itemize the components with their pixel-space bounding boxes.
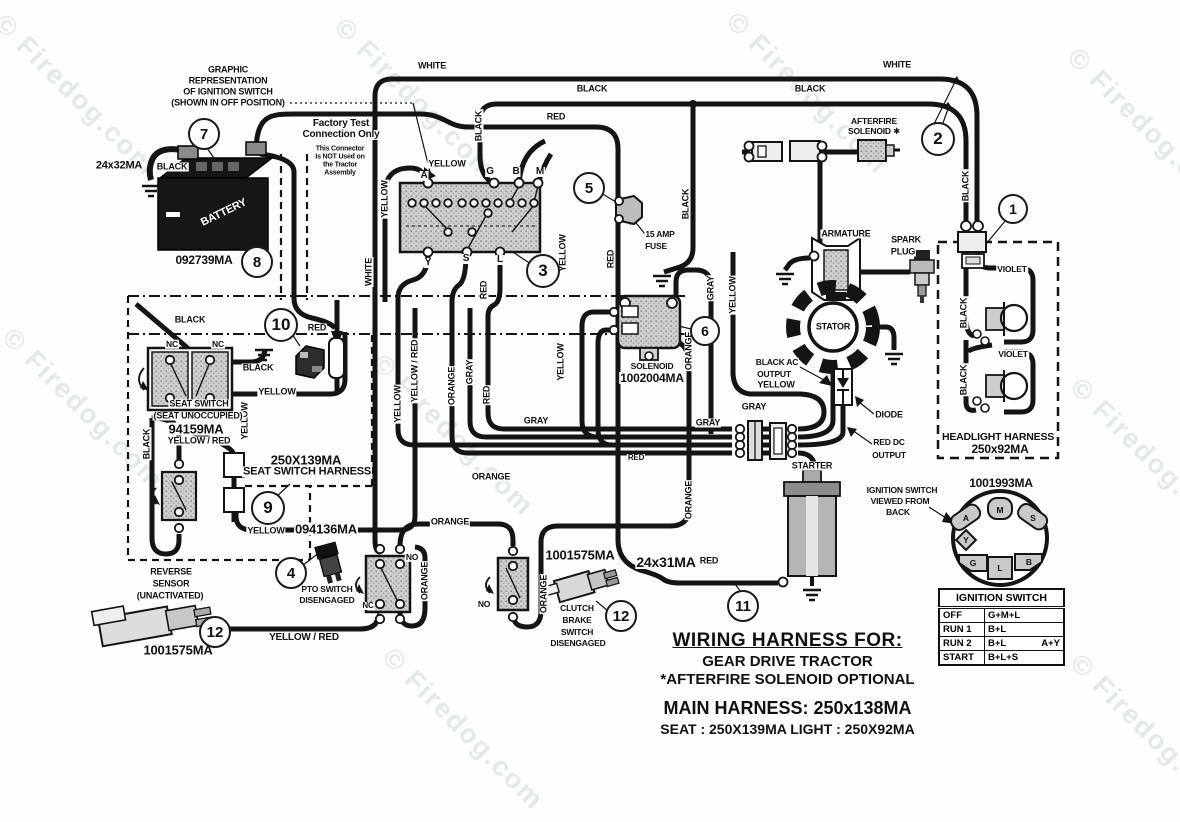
- label-reverse-name-3: (UNACTIVATED): [136, 592, 205, 601]
- title-line-1: WIRING HARNESS FOR:: [615, 630, 960, 652]
- callout-3: 3: [526, 254, 560, 288]
- label-v-black-right: BLACK: [962, 170, 971, 203]
- callout-5: 5: [573, 172, 605, 204]
- label-term-l: L: [496, 255, 504, 265]
- label-ignsw-note-3: BACK: [885, 508, 911, 517]
- label-layer: GRAPHICREPRESENTATIONOF IGNITION SWITCH(…: [0, 0, 1180, 803]
- label-factory-test-4: Is NOT Used on: [314, 154, 365, 161]
- label-v-black-rev: BLACK: [143, 428, 152, 461]
- label-pto-conn-part: 094136MA: [294, 523, 358, 536]
- ignition-table-header: IGNITION SWITCH: [939, 589, 1064, 608]
- label-battery-wire-black: BLACK: [156, 163, 189, 172]
- table-row: OFFG+M+L: [939, 608, 1064, 623]
- title-block: WIRING HARNESS FOR: GEAR DRIVE TRACTOR *…: [615, 630, 960, 737]
- label-clutch-name-2: BRAKE: [561, 616, 592, 625]
- label-ignsw-part: 1001993MA: [968, 477, 1034, 489]
- label-fuse-2: FUSE: [644, 242, 668, 251]
- label-wire-violet-2: VIOLET: [997, 350, 1029, 359]
- label-v-orange-band: ORANGE: [448, 366, 457, 406]
- label-term-y: Y: [424, 258, 432, 268]
- label-v-yellow-sol: YELLOW: [557, 342, 566, 381]
- callout-11: 11: [727, 590, 759, 622]
- label-term-g: G: [485, 167, 495, 177]
- label-v-black-hl2: BLACK: [960, 364, 969, 397]
- label-wire-orange-1: ORANGE: [471, 473, 511, 482]
- switch-back-terminal-L: L: [997, 563, 1002, 573]
- label-clutch-part: 1001575MA: [544, 549, 615, 562]
- label-graphic-note-1: GRAPHIC: [207, 66, 249, 75]
- label-clutch-name-1: CLUTCH: [559, 604, 595, 613]
- label-factory-test-5: the Tractor: [322, 162, 358, 169]
- label-battery-part: 092739MA: [174, 254, 233, 266]
- label-seat-name-2: (SEAT UNOCCUPIED): [153, 412, 244, 421]
- title-line-2: GEAR DRIVE TRACTOR: [615, 653, 960, 670]
- switch-back-terminal-A: A: [963, 513, 969, 523]
- label-battery-name: BATTERY: [199, 197, 250, 229]
- label-v-black-hl1: BLACK: [960, 297, 969, 330]
- callout-9: 9: [251, 491, 285, 525]
- label-starter-red: RED: [699, 557, 719, 566]
- label-clutch-name-3: SWITCH: [560, 628, 594, 637]
- label-v-red-fuse: RED: [607, 249, 616, 269]
- switch-back-terminal-B: B: [1026, 557, 1032, 567]
- label-factory-test-6: Assembly: [323, 170, 356, 177]
- label-v-yellowred-band: YELLOW / RED: [411, 339, 420, 404]
- label-ignsw-note-2: VIEWED FROM: [870, 497, 931, 506]
- label-seat-yellow: YELLOW: [257, 388, 296, 397]
- label-graphic-note-2: REPRESENTATION: [188, 77, 269, 86]
- label-factory-test-3: This Connector: [315, 146, 366, 153]
- label-solenoid-name: SOLENOID: [630, 362, 675, 371]
- label-pto-name-1: PTO SWITCH: [300, 585, 353, 594]
- label-clutch-no: NO: [477, 600, 491, 609]
- label-seat-black-top: BLACK: [174, 316, 207, 325]
- title-line-4: MAIN HARNESS: 250x138MA: [615, 698, 960, 719]
- label-wire-black-top-left: BLACK: [576, 85, 609, 94]
- label-term-m: M: [535, 167, 545, 177]
- label-v-red-l: RED: [480, 280, 489, 300]
- label-diode-name: DIODE: [874, 411, 904, 420]
- label-headlight-name: HEADLIGHT HARNESS: [941, 432, 1055, 443]
- label-harness-name: SEAT SWITCH HARNESS: [242, 467, 372, 478]
- label-v-gray-band: GRAY: [466, 359, 475, 385]
- label-clutch-name-4: DISENGAGED: [549, 639, 606, 648]
- label-pto-nc: NC: [361, 602, 374, 610]
- label-v-red-band: RED: [483, 385, 492, 405]
- label-pto-name-2: DISENGAGED: [298, 596, 355, 605]
- label-v-gray-stator: GRAY: [707, 275, 716, 301]
- callout-2: 2: [921, 122, 955, 156]
- label-v-black-gnd: BLACK: [682, 188, 691, 221]
- label-wire-black-top-right: BLACK: [794, 85, 827, 94]
- wiring-diagram: © Firedog.com© Firedog.com© Firedog.com©…: [0, 0, 1180, 803]
- label-v-white: WHITE: [365, 257, 374, 287]
- label-solenoid-part: 1002004MA: [619, 372, 685, 384]
- label-starter-gauge: 24x31MA: [635, 555, 696, 569]
- label-wire-yellowred-bottom: YELLOW / RED: [268, 633, 340, 643]
- label-wire-yellow-ac: YELLOW: [756, 381, 795, 390]
- label-seat-red: RED: [307, 324, 327, 333]
- callout-8: 8: [241, 246, 273, 278]
- label-graphic-note-3: OF IGNITION SWITCH: [182, 88, 273, 97]
- label-v-yellow-a: YELLOW: [381, 179, 390, 218]
- label-blackac-2: OUTPUT: [756, 370, 792, 379]
- label-headlight-part: 250x92MA: [970, 443, 1029, 455]
- switch-back-terminal-S: S: [1030, 513, 1036, 523]
- label-v-yellow-l: YELLOW: [559, 233, 568, 272]
- label-afterfire-1: AFTERFIRE: [850, 117, 898, 126]
- label-term-s: S: [462, 254, 470, 264]
- label-v-yellow-band: YELLOW: [394, 384, 403, 423]
- label-v-orange-pto: ORANGE: [421, 561, 430, 601]
- switch-back-terminal-G: G: [970, 558, 977, 568]
- label-v-black-g: BLACK: [475, 110, 484, 143]
- label-reddc-1: RED DC: [872, 438, 905, 447]
- callout-10: 10: [264, 308, 298, 342]
- label-blackac-1: BLACK AC: [755, 358, 799, 367]
- label-v-orange-clutch: ORANGE: [540, 574, 549, 614]
- label-term-a: A: [419, 171, 428, 181]
- label-reverse-name-1: REVERSE: [149, 568, 193, 577]
- label-seat-nc-2: NC: [211, 340, 225, 349]
- label-pto-no: NO: [405, 553, 419, 562]
- label-stator-name: STATOR: [815, 323, 851, 332]
- label-wire-yellow-low: YELLOW: [246, 527, 285, 536]
- label-wire-yellow-switch: YELLOW: [427, 160, 466, 169]
- label-ignsw-note-1: IGNITION SWITCH: [866, 486, 939, 495]
- label-armature-name: ARMATURE: [820, 230, 871, 239]
- label-seat-name-1: SEAT SWITCH: [168, 400, 229, 409]
- label-wire-red-bundle: RED: [627, 454, 645, 462]
- label-factory-test-2: Connection Only: [301, 130, 380, 140]
- label-battery-gauge: 24x32MA: [95, 161, 143, 172]
- label-seat-yellowred: YELLOW / RED: [167, 437, 232, 446]
- title-line-5: SEAT : 250X139MA LIGHT : 250X92MA: [615, 721, 960, 737]
- label-reverse-part: 1001575MA: [142, 644, 213, 657]
- title-line-3: *AFTERFIRE SOLENOID OPTIONAL: [615, 671, 960, 688]
- label-wire-violet-1: VIOLET: [996, 265, 1028, 274]
- label-v-yellow-stator: YELLOW: [729, 275, 738, 314]
- label-wire-orange-2: ORANGE: [430, 518, 470, 527]
- callout-7: 7: [188, 118, 220, 150]
- label-wire-gray-2: GRAY: [695, 419, 721, 428]
- switch-back-terminal-Y: Y: [963, 535, 969, 545]
- label-reverse-name-2: SENSOR: [152, 580, 191, 589]
- label-v-yellow-seat: YELLOW: [241, 401, 250, 440]
- label-wire-red-top: RED: [546, 113, 566, 122]
- label-factory-test-1: Factory Test: [312, 119, 370, 129]
- callout-1: 1: [998, 194, 1028, 224]
- label-v-orange-low: ORANGE: [685, 480, 694, 520]
- switch-back-terminal-M: M: [996, 505, 1003, 515]
- callout-4: 4: [275, 557, 307, 589]
- label-seat-black-right: BLACK: [242, 364, 275, 373]
- label-reddc-2: OUTPUT: [871, 451, 907, 460]
- callout-6: 6: [690, 316, 720, 346]
- label-term-b: B: [511, 167, 520, 177]
- label-spark-2: PLUG: [890, 248, 916, 257]
- label-wire-white-top-left: WHITE: [417, 62, 447, 71]
- label-wire-gray-3: GRAY: [523, 417, 549, 426]
- callout-12: 12: [605, 600, 637, 632]
- label-fuse-1: 15 AMP: [644, 230, 675, 239]
- callout-12: 12: [199, 616, 231, 648]
- label-seat-part: 94159MA: [168, 423, 225, 436]
- label-seat-nc-1: NC: [165, 340, 179, 349]
- label-spark-1: SPARK: [890, 236, 922, 245]
- label-starter-name: STARTER: [791, 462, 833, 471]
- label-afterfire-2: SOLENOID ✱: [847, 127, 901, 136]
- label-wire-white-top-right: WHITE: [882, 61, 912, 70]
- label-graphic-note-4: (SHOWN IN OFF POSITION): [170, 99, 285, 108]
- label-wire-gray-1: GRAY: [741, 403, 767, 412]
